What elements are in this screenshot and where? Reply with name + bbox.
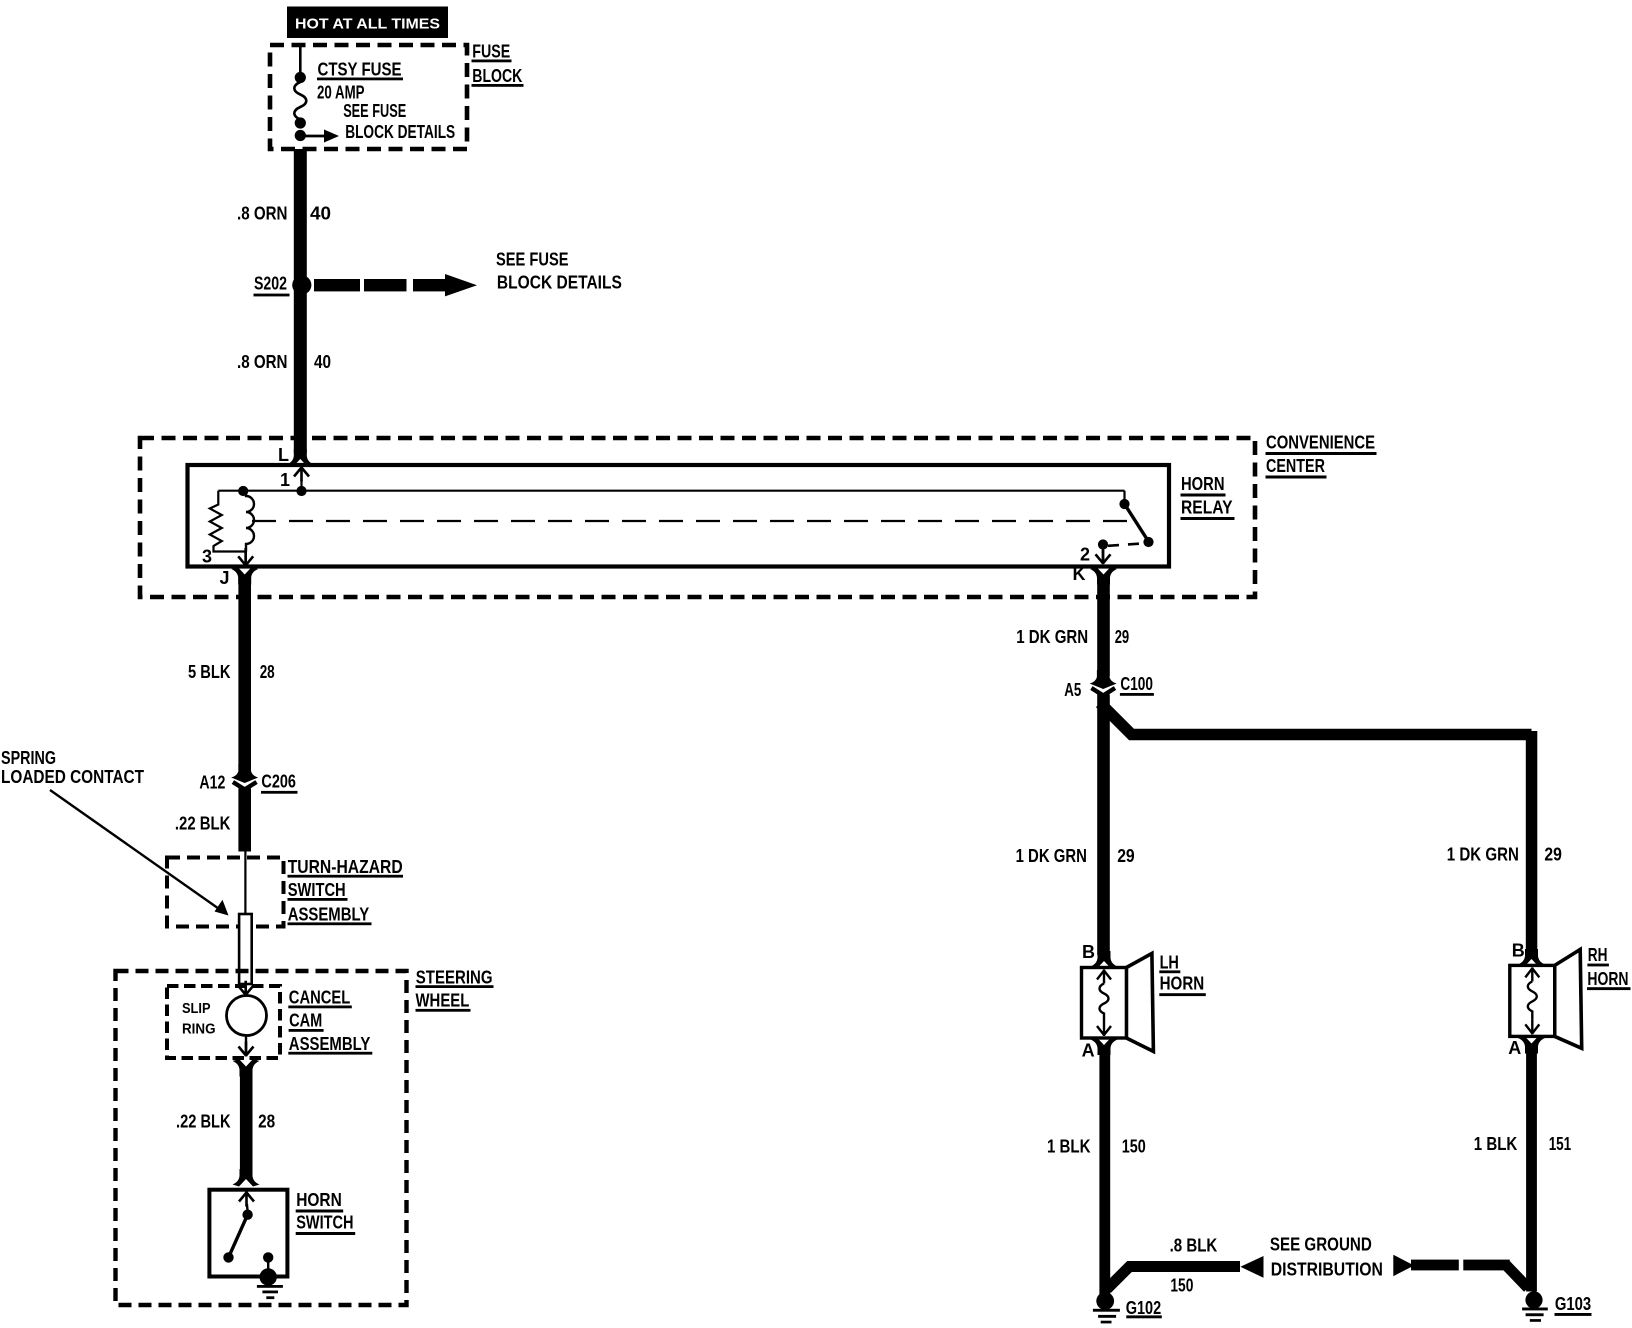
svg-text:BLOCK DETAILS: BLOCK DETAILS (345, 122, 455, 142)
svg-text:29: 29 (1117, 846, 1135, 866)
svg-text:K: K (1073, 564, 1086, 584)
svg-text:RELAY: RELAY (1181, 498, 1233, 518)
svg-text:5 BLK: 5 BLK (188, 662, 231, 682)
svg-text:SPRING: SPRING (1, 748, 56, 768)
svg-text:HORN: HORN (1160, 974, 1205, 994)
svg-text:A: A (1082, 1041, 1095, 1061)
svg-text:20 AMP: 20 AMP (317, 83, 365, 103)
svg-text:LH: LH (1160, 952, 1179, 972)
svg-text:S202: S202 (254, 274, 287, 294)
svg-text:1 DK GRN: 1 DK GRN (1016, 627, 1088, 647)
svg-text:B: B (1512, 941, 1525, 961)
svg-text:CAM: CAM (289, 1011, 322, 1031)
svg-text:CENTER: CENTER (1266, 456, 1325, 476)
svg-text:.8 ORN: .8 ORN (237, 203, 288, 223)
svg-text:.8 ORN: .8 ORN (237, 352, 288, 372)
svg-text:A: A (1508, 1038, 1521, 1058)
svg-text:150: 150 (1170, 1275, 1193, 1295)
svg-text:SEE GROUND: SEE GROUND (1270, 1235, 1372, 1255)
svg-text:FUSE: FUSE (472, 42, 510, 62)
svg-text:G103: G103 (1555, 1294, 1591, 1314)
svg-text:29: 29 (1115, 627, 1130, 647)
svg-text:HOT AT ALL TIMES: HOT AT ALL TIMES (295, 16, 440, 33)
svg-text:29: 29 (1544, 845, 1562, 865)
svg-text:TURN-HAZARD: TURN-HAZARD (288, 857, 403, 877)
svg-text:RH: RH (1588, 945, 1608, 965)
svg-text:3: 3 (202, 547, 212, 567)
svg-text:SEE FUSE: SEE FUSE (343, 101, 406, 121)
svg-text:28: 28 (260, 662, 275, 682)
svg-text:1 DK GRN: 1 DK GRN (1016, 846, 1087, 866)
svg-text:A12: A12 (199, 772, 225, 792)
svg-text:28: 28 (258, 1112, 275, 1132)
svg-text:ASSEMBLY: ASSEMBLY (288, 905, 370, 925)
svg-text:CTSY FUSE: CTSY FUSE (318, 60, 402, 80)
svg-text:SWITCH: SWITCH (296, 1213, 353, 1233)
svg-text:RING: RING (182, 1022, 216, 1038)
svg-text:HORN: HORN (1587, 969, 1628, 989)
svg-text:SWITCH: SWITCH (288, 880, 346, 900)
svg-text:HORN: HORN (1181, 474, 1225, 494)
svg-text:CANCEL: CANCEL (289, 988, 350, 1008)
svg-text:SEE FUSE: SEE FUSE (496, 249, 569, 269)
svg-text:LOADED CONTACT: LOADED CONTACT (1, 767, 144, 787)
svg-text:40: 40 (314, 352, 331, 372)
svg-text:CONVENIENCE: CONVENIENCE (1266, 433, 1375, 453)
svg-text:.8 BLK: .8 BLK (1170, 1236, 1218, 1256)
svg-text:C100: C100 (1120, 674, 1153, 694)
svg-text:STEERING: STEERING (416, 967, 493, 987)
svg-text:ASSEMBLY: ASSEMBLY (289, 1034, 371, 1054)
svg-text:BLOCK DETAILS: BLOCK DETAILS (497, 273, 622, 293)
svg-text:40: 40 (310, 203, 331, 223)
svg-text:DISTRIBUTION: DISTRIBUTION (1271, 1259, 1383, 1279)
svg-text:WHEEL: WHEEL (416, 991, 470, 1011)
svg-text:B: B (1082, 942, 1095, 962)
svg-text:L: L (278, 445, 289, 465)
svg-text:C206: C206 (261, 772, 296, 792)
svg-text:A5: A5 (1064, 680, 1081, 700)
svg-text:BLOCK: BLOCK (472, 66, 522, 86)
svg-text:.22 BLK: .22 BLK (175, 813, 231, 833)
svg-text:150: 150 (1122, 1137, 1146, 1157)
svg-text:1 BLK: 1 BLK (1047, 1137, 1091, 1157)
svg-text:J: J (220, 568, 230, 588)
svg-text:1 DK GRN: 1 DK GRN (1447, 845, 1519, 865)
svg-text:2: 2 (1080, 545, 1090, 565)
svg-text:.22 BLK: .22 BLK (176, 1112, 231, 1132)
svg-text:HORN: HORN (296, 1190, 342, 1210)
svg-text:SLIP: SLIP (182, 1001, 211, 1017)
svg-text:151: 151 (1549, 1134, 1572, 1154)
svg-text:1: 1 (280, 470, 290, 490)
svg-text:G102: G102 (1126, 1298, 1162, 1318)
svg-text:1 BLK: 1 BLK (1474, 1134, 1518, 1154)
